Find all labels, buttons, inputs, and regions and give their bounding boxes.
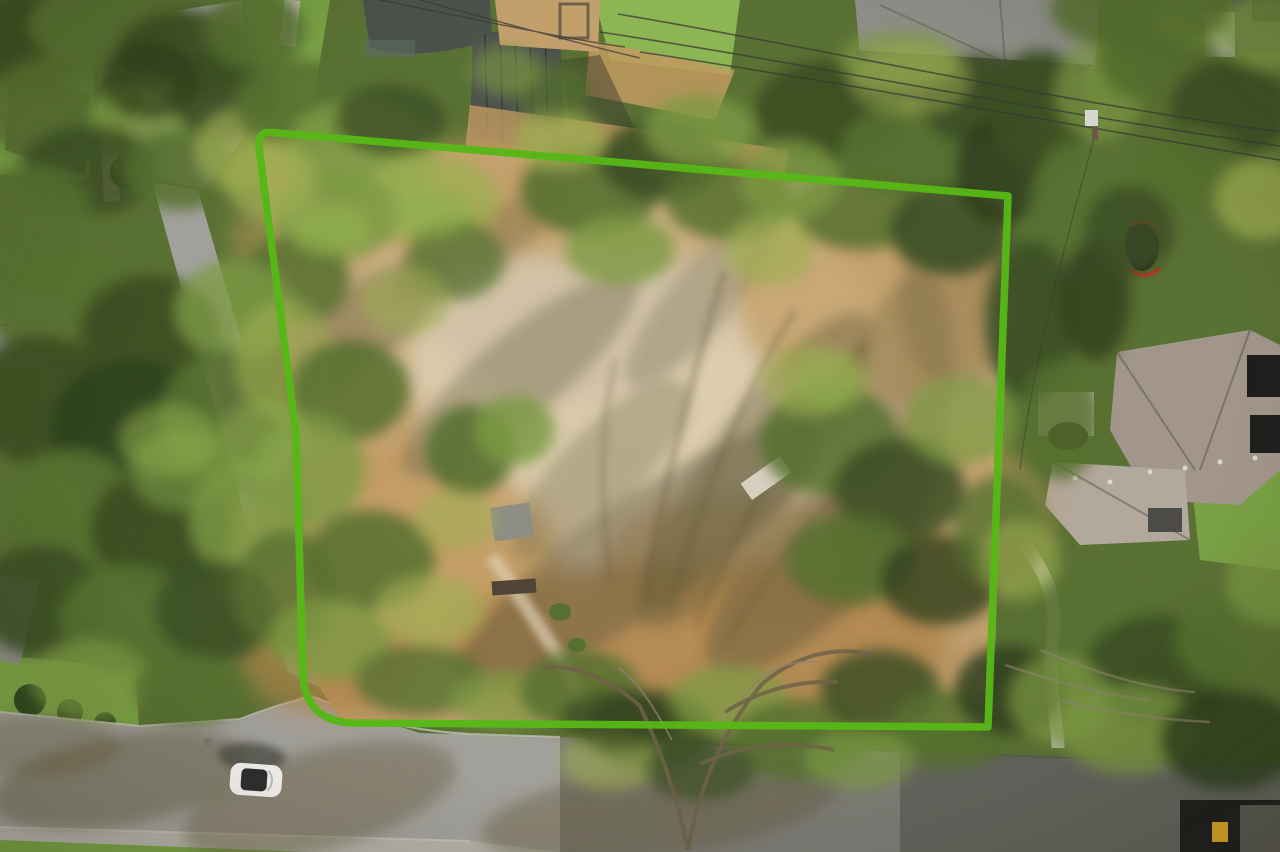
aerial-photo-canvas — [0, 0, 1280, 852]
aerial-photo — [0, 0, 1280, 852]
